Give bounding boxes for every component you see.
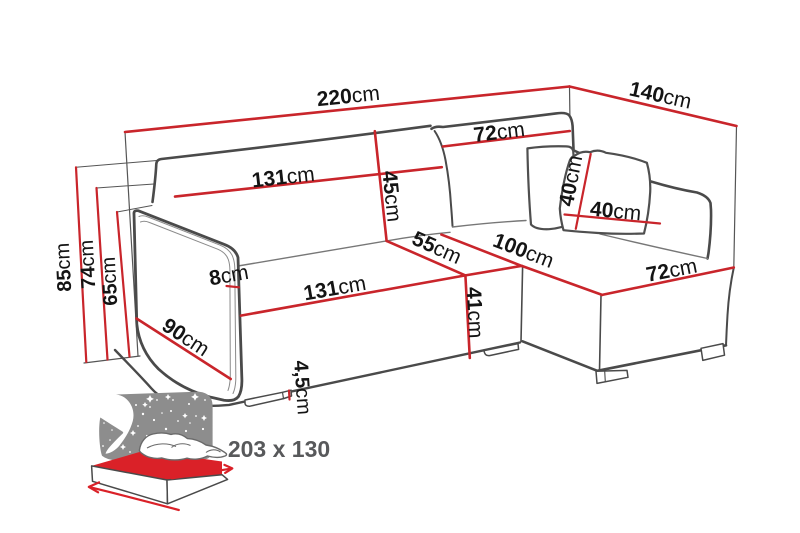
svg-text:4,5cm: 4,5cm	[289, 360, 315, 416]
svg-text:203 x 130: 203 x 130	[228, 436, 330, 462]
svg-text:41cm: 41cm	[462, 286, 488, 338]
svg-text:65cm: 65cm	[98, 256, 123, 306]
svg-text:40cm: 40cm	[589, 198, 642, 226]
svg-text:85cm: 85cm	[52, 242, 77, 292]
svg-text:74cm: 74cm	[76, 239, 101, 289]
